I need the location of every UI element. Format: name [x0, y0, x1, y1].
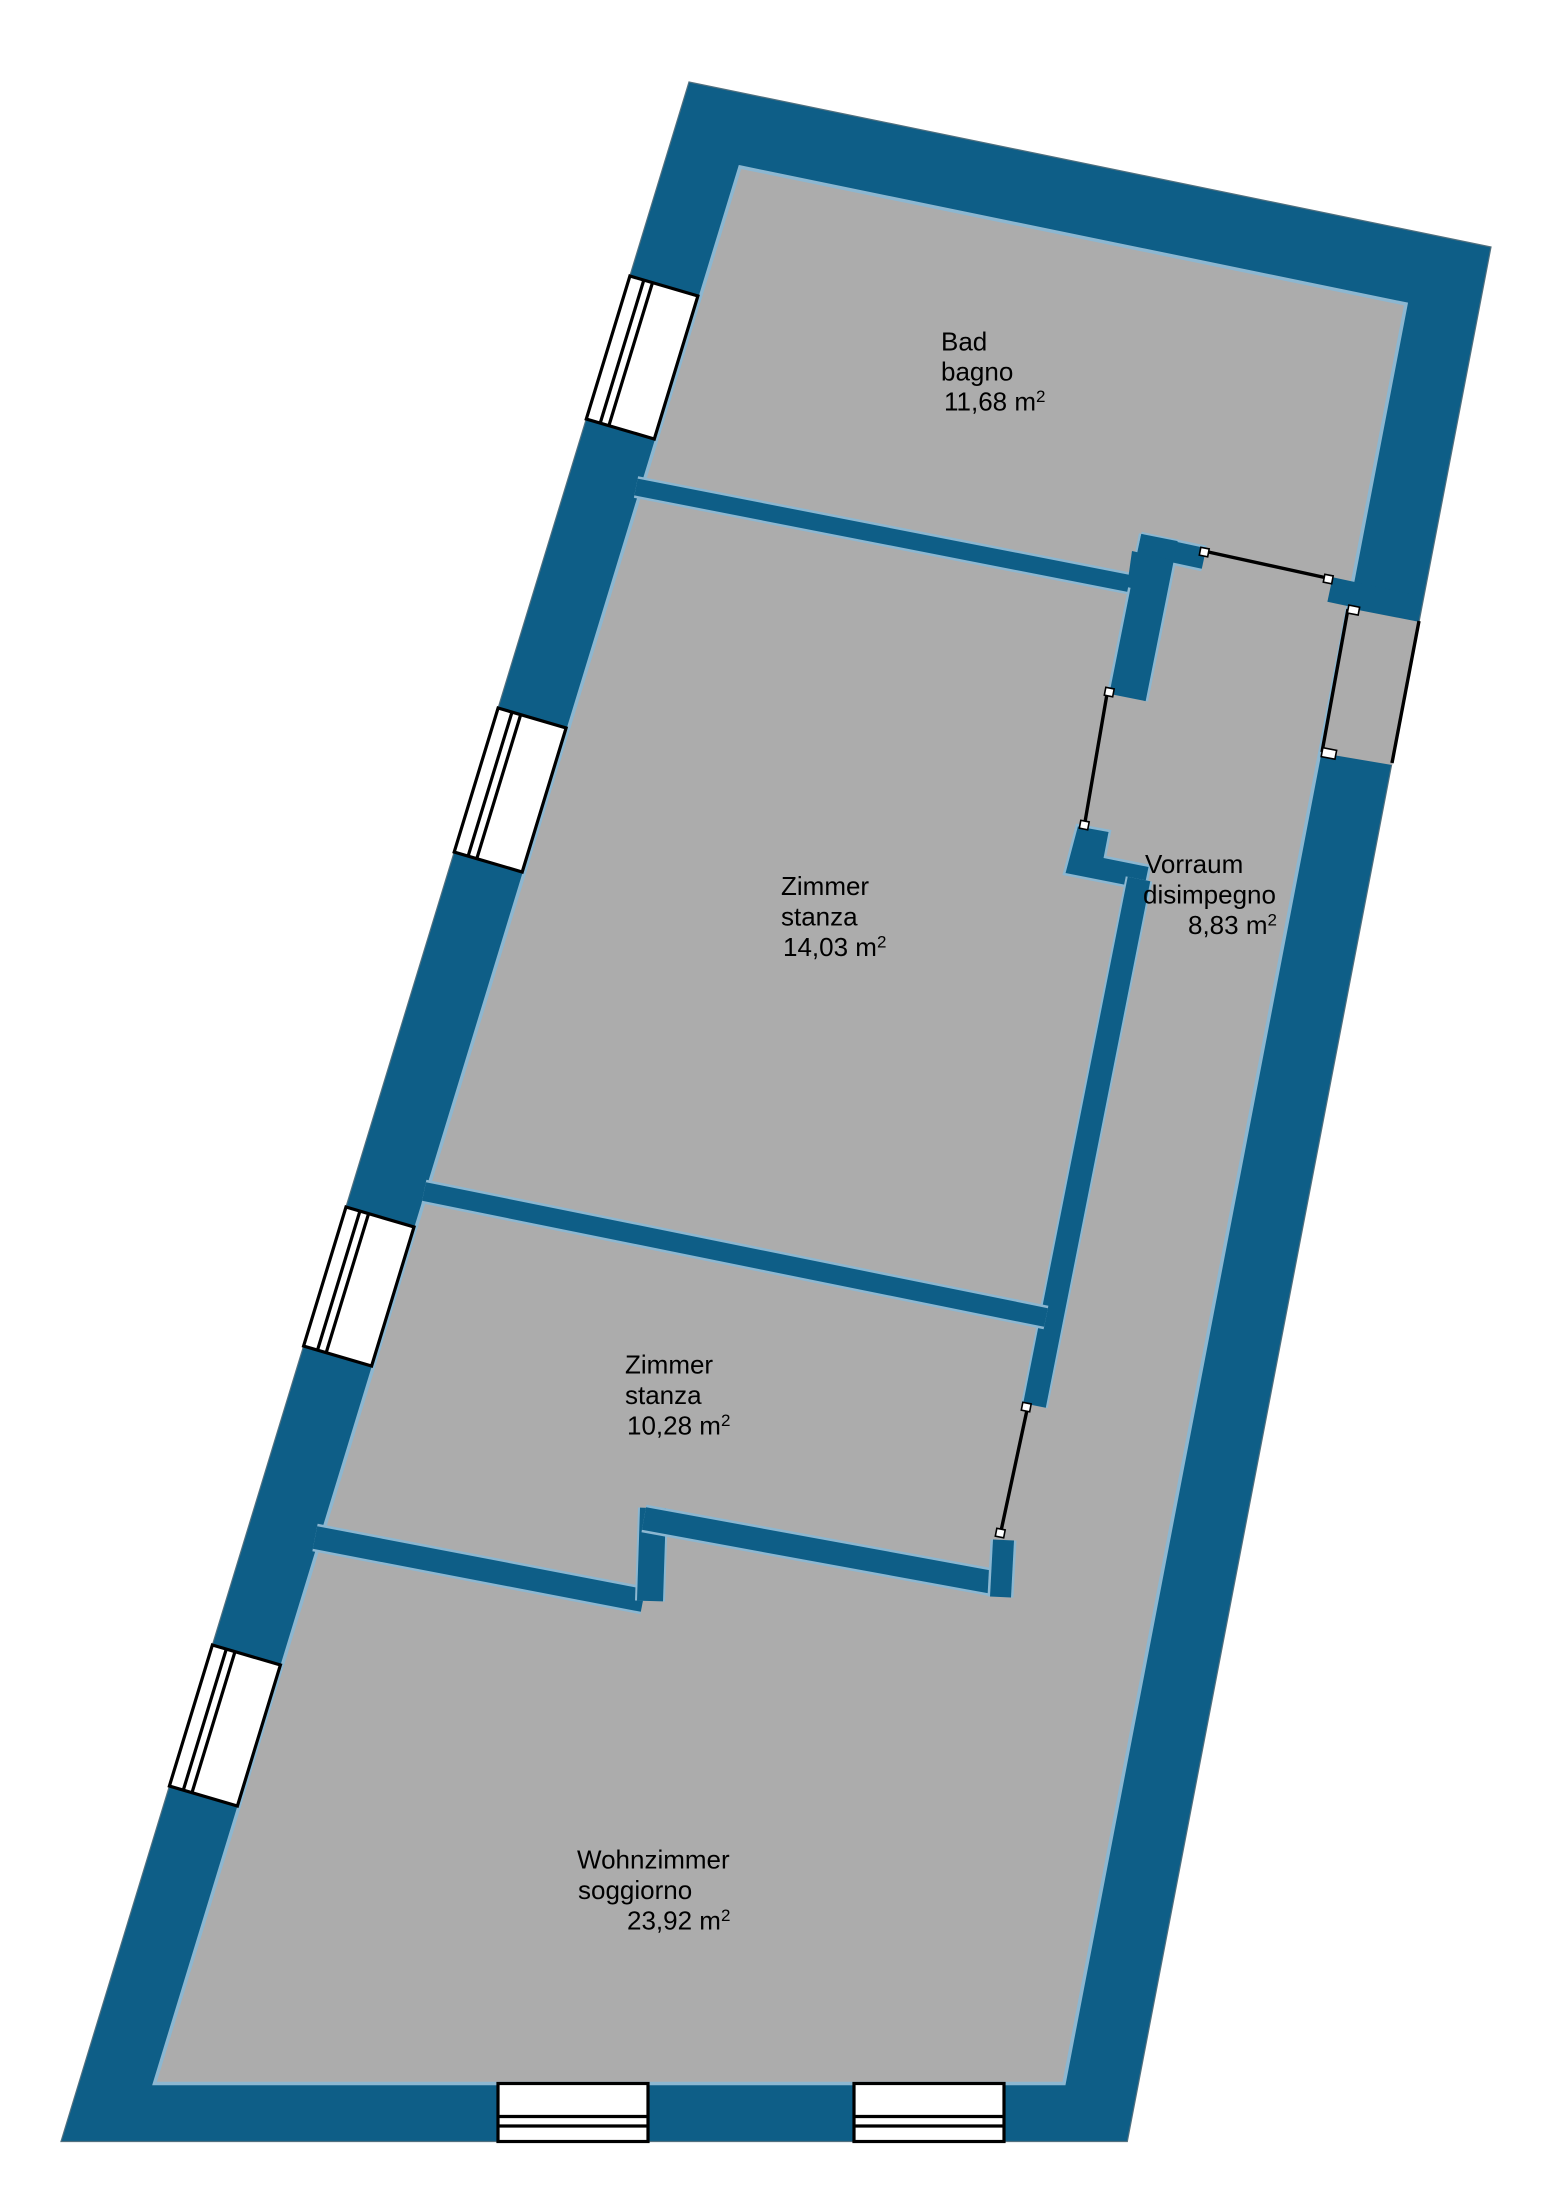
svg-text:Bad: Bad: [941, 326, 987, 356]
svg-text:Vorraum: Vorraum: [1145, 849, 1243, 879]
svg-text:Zimmer: Zimmer: [625, 1350, 713, 1380]
svg-text:8,83 m2: 8,83 m2: [1188, 910, 1277, 940]
svg-text:10,28 m2: 10,28 m2: [627, 1411, 730, 1441]
svg-text:Zimmer: Zimmer: [781, 871, 869, 901]
svg-text:bagno: bagno: [941, 357, 1013, 387]
svg-text:11,68 m2: 11,68 m2: [944, 387, 1045, 417]
svg-text:Wohnzimmer: Wohnzimmer: [577, 1845, 730, 1875]
svg-text:soggiorno: soggiorno: [578, 1875, 692, 1905]
svg-text:stanza: stanza: [781, 901, 858, 931]
svg-text:disimpegno: disimpegno: [1143, 879, 1276, 909]
svg-text:stanza: stanza: [625, 1380, 702, 1410]
svg-text:23,92 m2: 23,92 m2: [627, 1905, 730, 1935]
svg-text:14,03 m2: 14,03 m2: [783, 932, 886, 962]
